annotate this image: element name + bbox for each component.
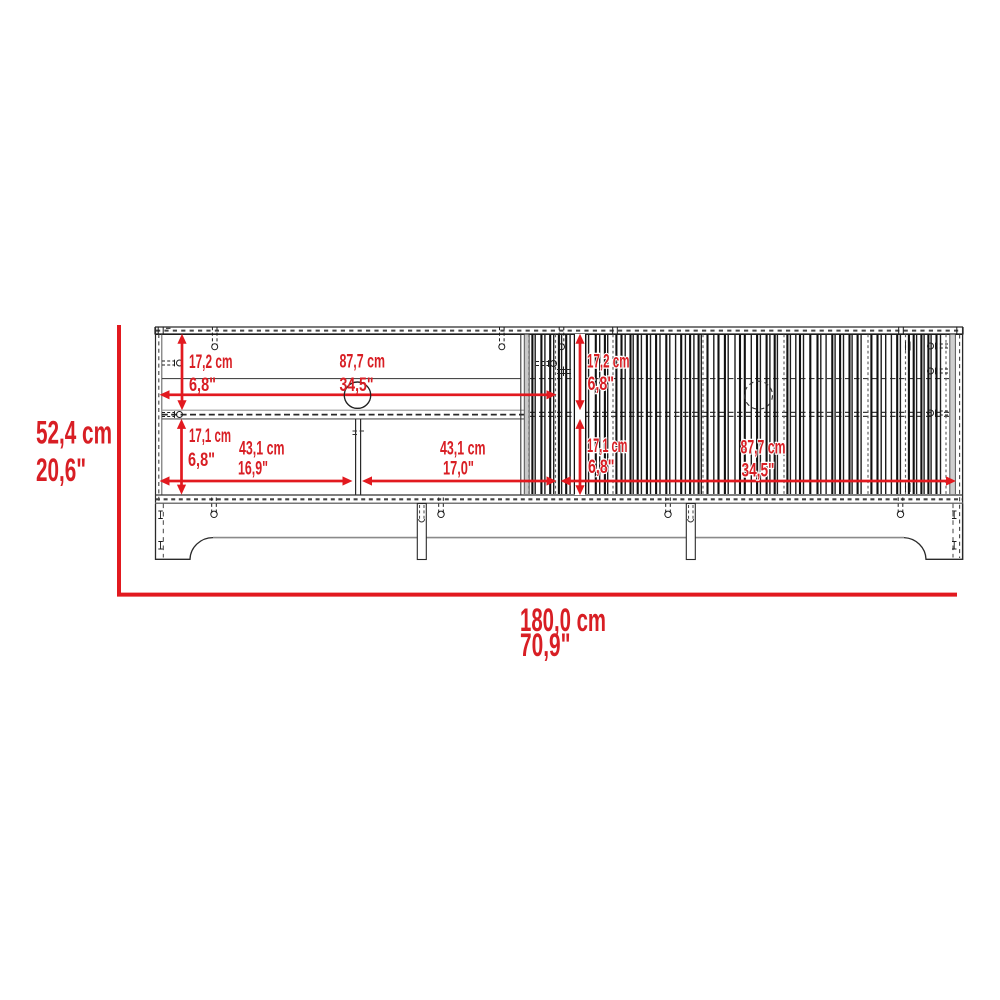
svg-text:17,1 cm: 17,1 cm [587, 435, 628, 457]
svg-text:16,9": 16,9" [238, 457, 268, 479]
svg-text:87,7 cm: 87,7 cm [741, 437, 786, 459]
svg-text:17,0": 17,0" [443, 457, 474, 479]
svg-text:70,9": 70,9" [520, 627, 571, 663]
svg-text:87,7 cm: 87,7 cm [340, 351, 386, 373]
svg-text:17,1 cm: 17,1 cm [189, 425, 231, 447]
svg-text:6,8": 6,8" [189, 374, 216, 396]
svg-text:43,1 cm: 43,1 cm [440, 438, 486, 460]
svg-text:6,8": 6,8" [188, 449, 215, 471]
svg-text:34,5": 34,5" [340, 374, 374, 396]
svg-text:34,5": 34,5" [742, 460, 775, 482]
svg-text:6,8": 6,8" [588, 373, 615, 395]
svg-text:20,6": 20,6" [36, 452, 86, 488]
svg-text:52,4 cm: 52,4 cm [36, 415, 112, 451]
svg-text:17,2 cm: 17,2 cm [587, 351, 630, 373]
svg-text:17,2 cm: 17,2 cm [189, 351, 233, 373]
svg-text:43,1 cm: 43,1 cm [239, 438, 285, 460]
svg-text:6,8": 6,8" [588, 456, 615, 478]
